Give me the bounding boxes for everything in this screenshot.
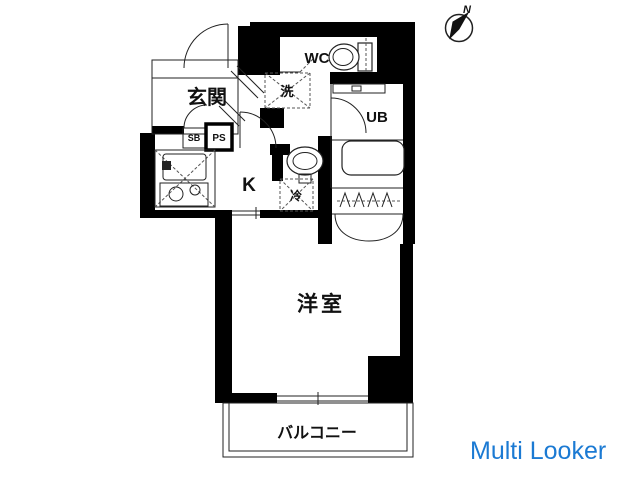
- balcony-label: バルコニー: [277, 424, 357, 442]
- washbasin-icon: [287, 147, 323, 175]
- burner-icon: [190, 185, 200, 195]
- ub-shelf: [333, 84, 385, 93]
- kitchen-area: K: [155, 150, 256, 207]
- kitchen-label: K: [242, 175, 256, 196]
- burner-icon: [169, 187, 183, 201]
- closet-curtain-icon: [335, 214, 403, 241]
- genkan-label: 玄関: [187, 85, 227, 109]
- walls: [140, 22, 415, 403]
- toilet-tank-icon: [358, 43, 372, 71]
- ps-label: PS: [212, 133, 226, 144]
- stove-icon: [160, 183, 208, 206]
- western-room-area: 洋室: [232, 207, 368, 405]
- wc-label: WC: [305, 50, 330, 67]
- floor-plan-canvas: SB PS 玄関 WC 洗 UB: [0, 0, 640, 480]
- unit-bath-area: UB: [331, 84, 404, 188]
- refrigerator-area: 冷: [280, 179, 313, 211]
- washing-machine-area: 洗: [265, 73, 310, 108]
- sliding-door: [232, 207, 260, 219]
- compass-north-icon: N: [446, 4, 473, 42]
- sb-label: SB: [188, 133, 201, 143]
- fridge-label: 冷: [290, 188, 302, 203]
- western-room-label: 洋室: [297, 292, 345, 316]
- wc-area: WC: [280, 38, 372, 72]
- ub-label: UB: [366, 109, 388, 126]
- ub-door-swing-arc: [331, 98, 366, 133]
- ub-shelf-mark: [352, 86, 361, 91]
- washer-label: 洗: [280, 84, 293, 99]
- closet-area: [331, 188, 403, 241]
- pillar: [368, 356, 413, 403]
- entry-door-swing-arc: [184, 24, 228, 68]
- washbasin-area: [287, 147, 323, 183]
- closet-hanger-icon: [340, 193, 392, 207]
- floor-plan-image: SB PS 玄関 WC 洗 UB: [0, 0, 640, 480]
- balcony-area: バルコニー: [223, 403, 413, 457]
- watermark: Multi Looker: [470, 437, 606, 465]
- faucet-icon: [162, 161, 171, 170]
- bathtub-icon: [342, 141, 404, 175]
- compass-n-label: N: [463, 4, 472, 16]
